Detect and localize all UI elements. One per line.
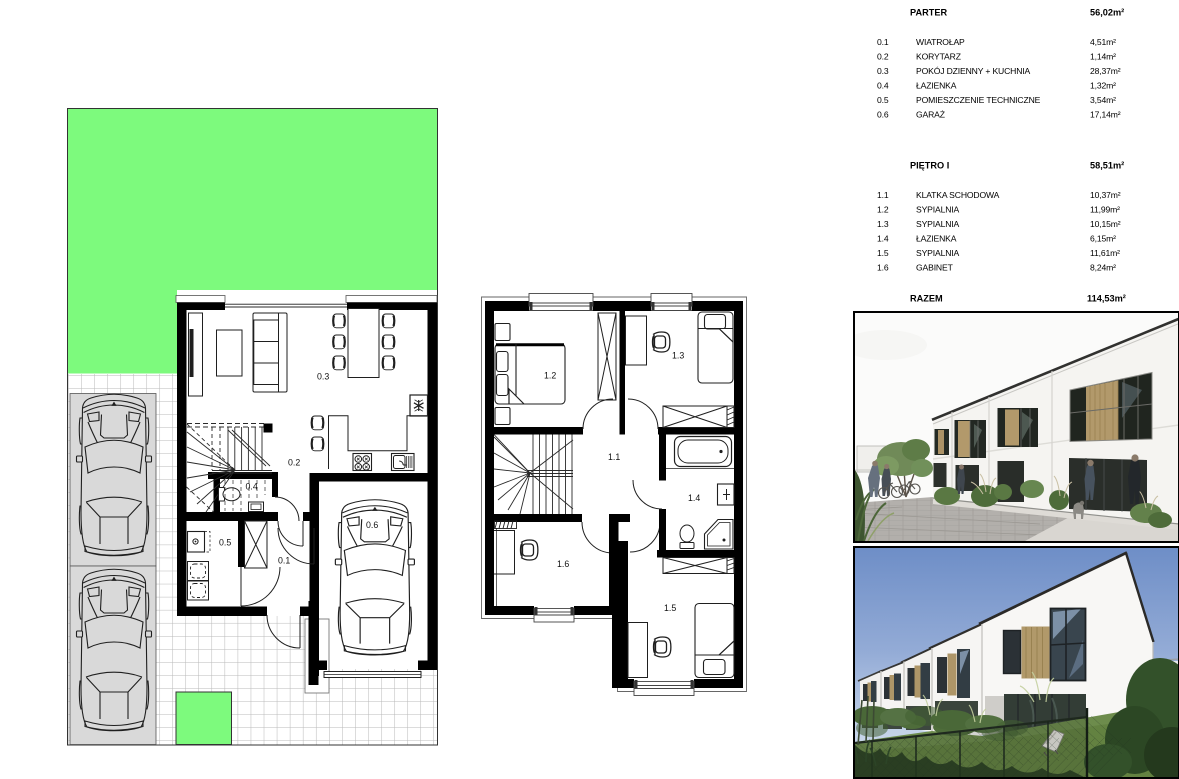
svg-text:0.4: 0.4 [246,482,258,492]
svg-text:1.6: 1.6 [877,263,889,273]
svg-text:1.3: 1.3 [877,219,889,229]
svg-text:1.4: 1.4 [877,234,889,244]
svg-text:1,32m²: 1,32m² [1090,81,1116,91]
svg-text:0.3: 0.3 [317,372,329,382]
svg-text:RAZEM: RAZEM [910,294,943,304]
svg-text:1.3: 1.3 [672,351,684,361]
svg-text:1,14m²: 1,14m² [1090,52,1116,62]
svg-text:SYPIALNIA: SYPIALNIA [916,219,959,229]
svg-text:1.1: 1.1 [877,190,889,200]
svg-text:56,02m²: 56,02m² [1090,8,1124,18]
svg-text:1.6: 1.6 [557,559,569,569]
svg-text:0.5: 0.5 [219,538,231,548]
svg-text:POKÓJ DZIENNY + KUCHNIA: POKÓJ DZIENNY + KUCHNIA [916,66,1031,76]
svg-text:0.4: 0.4 [877,81,889,91]
svg-text:WIATROŁAP: WIATROŁAP [916,37,965,47]
svg-text:0.6: 0.6 [877,110,889,120]
svg-text:0.2: 0.2 [877,52,889,62]
svg-text:6,15m²: 6,15m² [1090,234,1116,244]
svg-text:ŁAZIENKA: ŁAZIENKA [916,81,957,91]
svg-text:1.5: 1.5 [664,603,676,613]
svg-text:ŁAZIENKA: ŁAZIENKA [916,234,957,244]
svg-text:28,37m²: 28,37m² [1090,66,1121,76]
svg-text:1.2: 1.2 [877,205,889,215]
svg-text:1.2: 1.2 [544,371,556,381]
svg-text:58,51m²: 58,51m² [1090,161,1124,171]
svg-text:1.1: 1.1 [608,452,620,462]
svg-text:0.6: 0.6 [366,520,378,530]
svg-text:17,14m²: 17,14m² [1090,110,1121,120]
svg-text:0.1: 0.1 [877,37,889,47]
svg-text:KLATKA SCHODOWA: KLATKA SCHODOWA [916,190,1000,200]
svg-text:8,24m²: 8,24m² [1090,263,1116,273]
svg-text:GARAŻ: GARAŻ [916,110,945,120]
svg-text:0.3: 0.3 [877,66,889,76]
svg-text:SYPIALNIA: SYPIALNIA [916,205,959,215]
svg-text:0.1: 0.1 [278,556,290,566]
svg-text:KORYTARZ: KORYTARZ [916,52,961,62]
svg-text:10,37m²: 10,37m² [1090,190,1121,200]
svg-text:PARTER: PARTER [910,8,947,18]
svg-text:SYPIALNIA: SYPIALNIA [916,248,959,258]
svg-text:10,15m²: 10,15m² [1090,219,1121,229]
svg-text:GABINET: GABINET [916,263,954,273]
svg-text:11,99m²: 11,99m² [1090,205,1120,215]
svg-text:11,61m²: 11,61m² [1090,248,1120,258]
svg-text:0.5: 0.5 [877,95,889,105]
svg-text:POMIESZCZENIE TECHNICZNE: POMIESZCZENIE TECHNICZNE [916,95,1041,105]
svg-text:0.2: 0.2 [288,458,300,468]
svg-text:PIĘTRO I: PIĘTRO I [910,161,949,171]
svg-text:1.4: 1.4 [688,493,700,503]
svg-text:4,51m²: 4,51m² [1090,37,1116,47]
svg-text:1.5: 1.5 [877,248,889,258]
svg-text:114,53m²: 114,53m² [1087,294,1126,304]
svg-text:3,54m²: 3,54m² [1090,95,1116,105]
